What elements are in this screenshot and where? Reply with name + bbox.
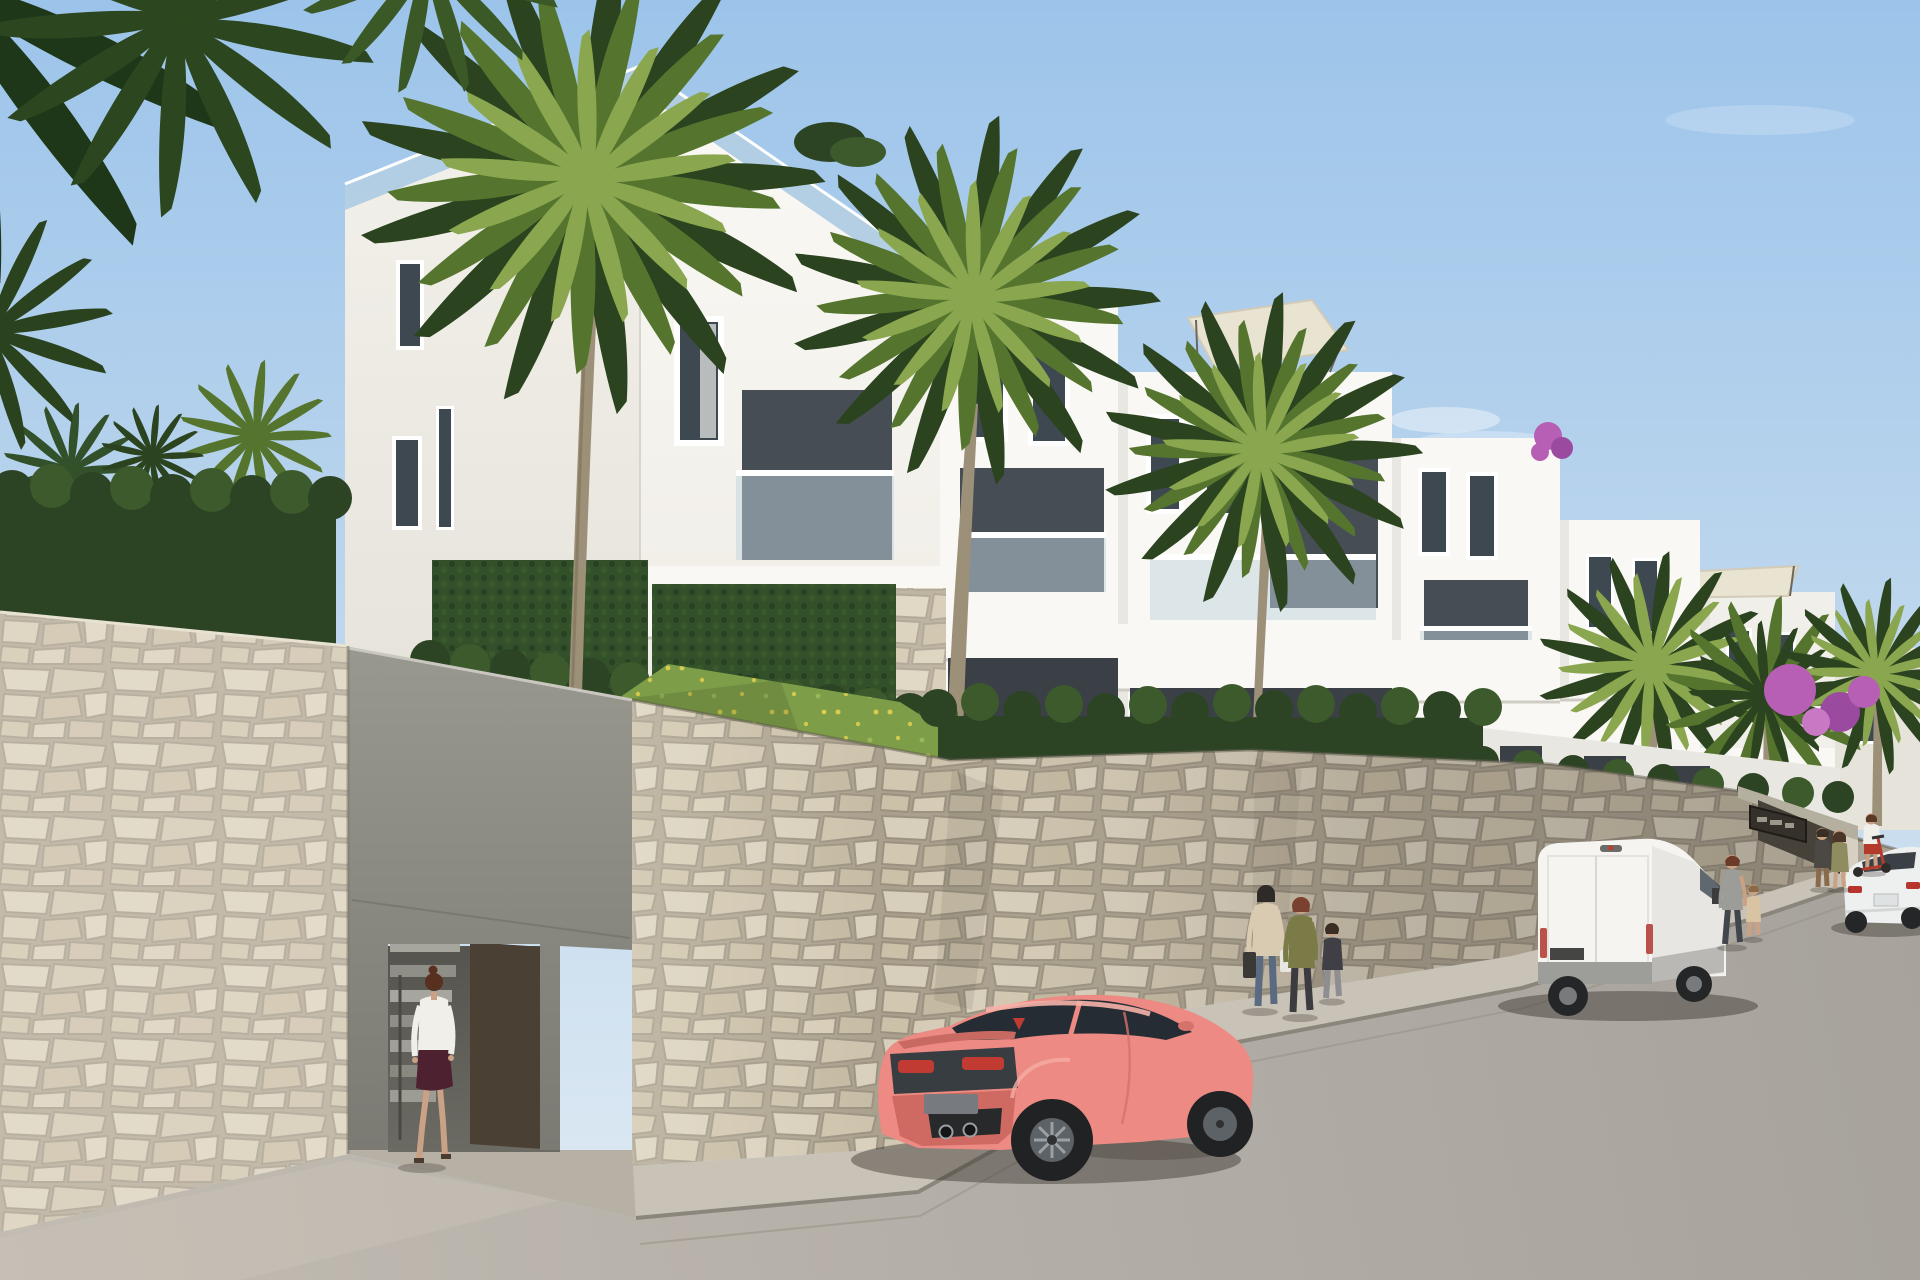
car-rear-wheel (1011, 1099, 1093, 1181)
van-bumper (1538, 962, 1652, 984)
stone-wall-left (0, 612, 348, 1232)
shopping-bag-dark (1243, 952, 1256, 978)
scene-architectural-render (0, 0, 1920, 1280)
car-mirror (1178, 1021, 1194, 1031)
car-front-wheel (1187, 1091, 1253, 1157)
license-plate (924, 1094, 978, 1114)
